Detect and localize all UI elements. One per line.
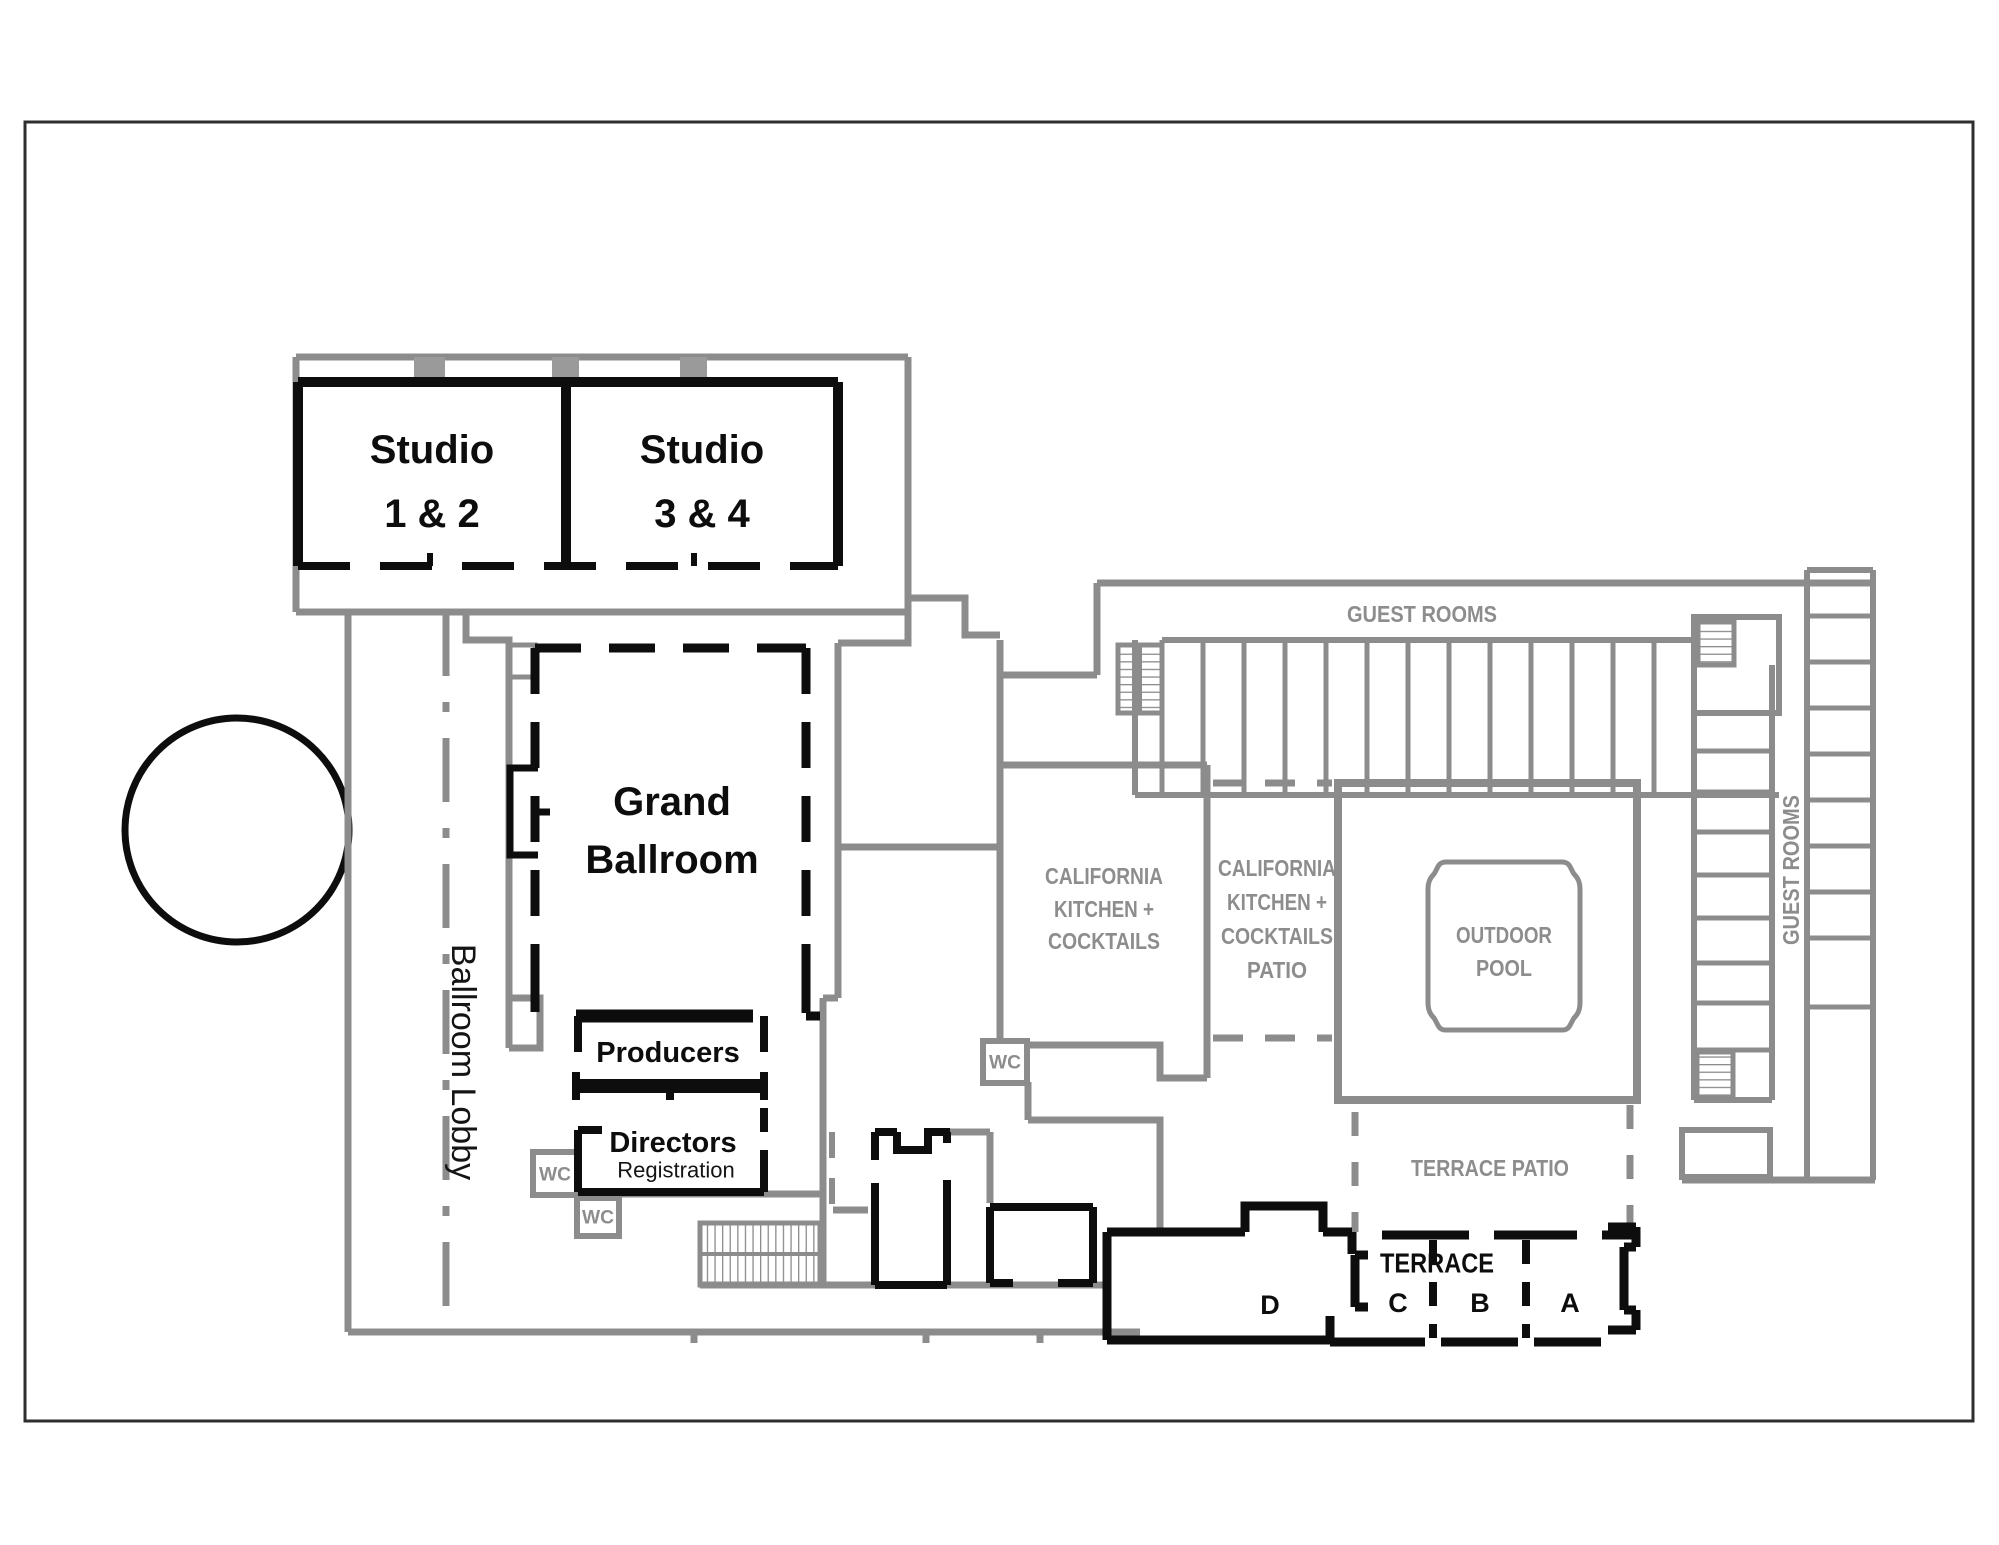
terrace-section-b: B (1470, 1288, 1490, 1318)
california-kitchen-patio-label: KITCHEN + (1227, 889, 1327, 915)
directors-label: Directors (609, 1127, 736, 1159)
floor-plan-page: Studio 1 & 2 Studio 3 & 4 Grand Ballroom… (0, 0, 1999, 1545)
stairs-block (1697, 1052, 1733, 1097)
california-kitchen-label: CALIFORNIA (1045, 863, 1163, 889)
producers-label: Producers (596, 1037, 739, 1069)
terrace-section-c: C (1388, 1288, 1408, 1318)
wc-label: WC (989, 1053, 1021, 1074)
terrace-section-a: A (1560, 1288, 1580, 1318)
california-kitchen-label: KITCHEN + (1054, 896, 1154, 922)
california-kitchen-patio-label: COCKTAILS (1221, 923, 1333, 949)
wc-label: WC (539, 1165, 571, 1186)
guest-rooms-right-label: GUEST ROOMS (1778, 795, 1804, 945)
floor-plan: Studio 1 & 2 Studio 3 & 4 Grand Ballroom… (0, 0, 1999, 1545)
guest-rooms-top-label: GUEST ROOMS (1347, 601, 1497, 627)
california-kitchen-label: COCKTAILS (1048, 928, 1160, 954)
terrace-label: TERRACE (1380, 1248, 1494, 1279)
studio-1-2-label: Studio (370, 428, 494, 472)
wc-label: WC (582, 1208, 614, 1229)
california-kitchen-patio-label: CALIFORNIA (1218, 855, 1336, 881)
terrace-patio-label: TERRACE PATIO (1411, 1155, 1569, 1181)
ballroom-lobby-label: Ballroom Lobby (444, 944, 482, 1180)
outdoor-pool-label: OUTDOOR (1456, 922, 1552, 948)
studio-3-4-label: Studio (640, 428, 764, 472)
stairs-block (1698, 621, 1734, 665)
terrace-section-d: D (1260, 1290, 1280, 1320)
grand-ballroom-label: Ballroom (585, 838, 758, 882)
grand-ballroom-label: Grand (613, 780, 731, 824)
registration-label: Registration (617, 1158, 734, 1183)
outdoor-pool-label: POOL (1476, 955, 1532, 981)
studio-3-4-label: 3 & 4 (654, 492, 750, 536)
studio-1-2-label: 1 & 2 (384, 492, 480, 536)
california-kitchen-patio-label: PATIO (1247, 957, 1307, 983)
